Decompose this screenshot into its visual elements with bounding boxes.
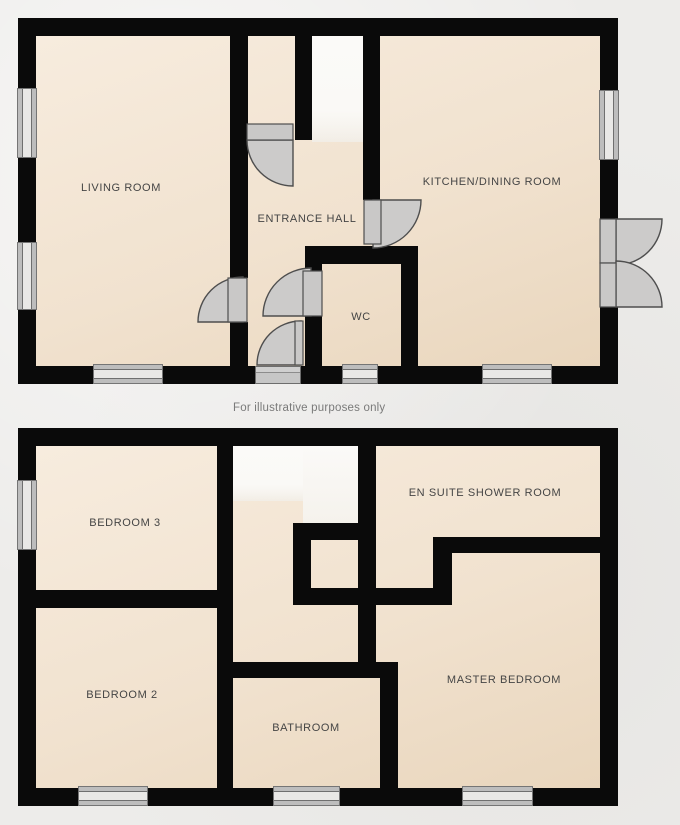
illustrative-caption: For illustrative purposes only: [233, 402, 385, 414]
window: [342, 364, 378, 384]
window: [17, 242, 37, 310]
window: [78, 786, 148, 806]
wall: [363, 36, 380, 200]
wall: [401, 264, 418, 366]
wall: [295, 36, 312, 140]
wall: [305, 264, 322, 274]
floor-plan-page: { "caption": "For illustrative purposes …: [0, 0, 680, 825]
room-label-living-room: LIVING ROOM: [81, 182, 161, 194]
wall: [217, 446, 233, 788]
room-label-kitchen-dining: KITCHEN/DINING ROOM: [423, 176, 562, 188]
wall: [305, 246, 418, 264]
wall: [293, 523, 376, 540]
wall: [305, 316, 322, 366]
stairwell: [303, 446, 358, 523]
window: [462, 786, 533, 806]
wall: [230, 322, 248, 366]
wall: [36, 590, 217, 608]
room-label-entrance-hall: ENTRANCE HALL: [258, 213, 357, 225]
door-swing-arc: [616, 219, 662, 265]
room-label-en-suite: EN SUITE SHOWER ROOM: [409, 487, 562, 499]
room-label-wc: WC: [351, 311, 371, 323]
wall: [433, 537, 452, 605]
room-label-bedroom-3: BEDROOM 3: [89, 517, 160, 529]
door-swing-arc: [616, 261, 662, 307]
room-label-bedroom-2: BEDROOM 2: [86, 689, 157, 701]
window: [273, 786, 340, 806]
wall: [433, 537, 603, 553]
wall: [358, 446, 376, 662]
wall: [222, 662, 398, 678]
window: [17, 480, 37, 550]
wall: [230, 36, 248, 278]
room-label-master-bedroom: MASTER BEDROOM: [447, 674, 561, 686]
front-door-threshold: [255, 366, 301, 384]
window: [17, 88, 37, 158]
window: [93, 364, 163, 384]
window: [482, 364, 552, 384]
room-label-bathroom: BATHROOM: [272, 722, 340, 734]
stairs: [312, 36, 363, 142]
wall: [293, 588, 452, 605]
window: [599, 90, 619, 160]
wall: [380, 662, 398, 788]
